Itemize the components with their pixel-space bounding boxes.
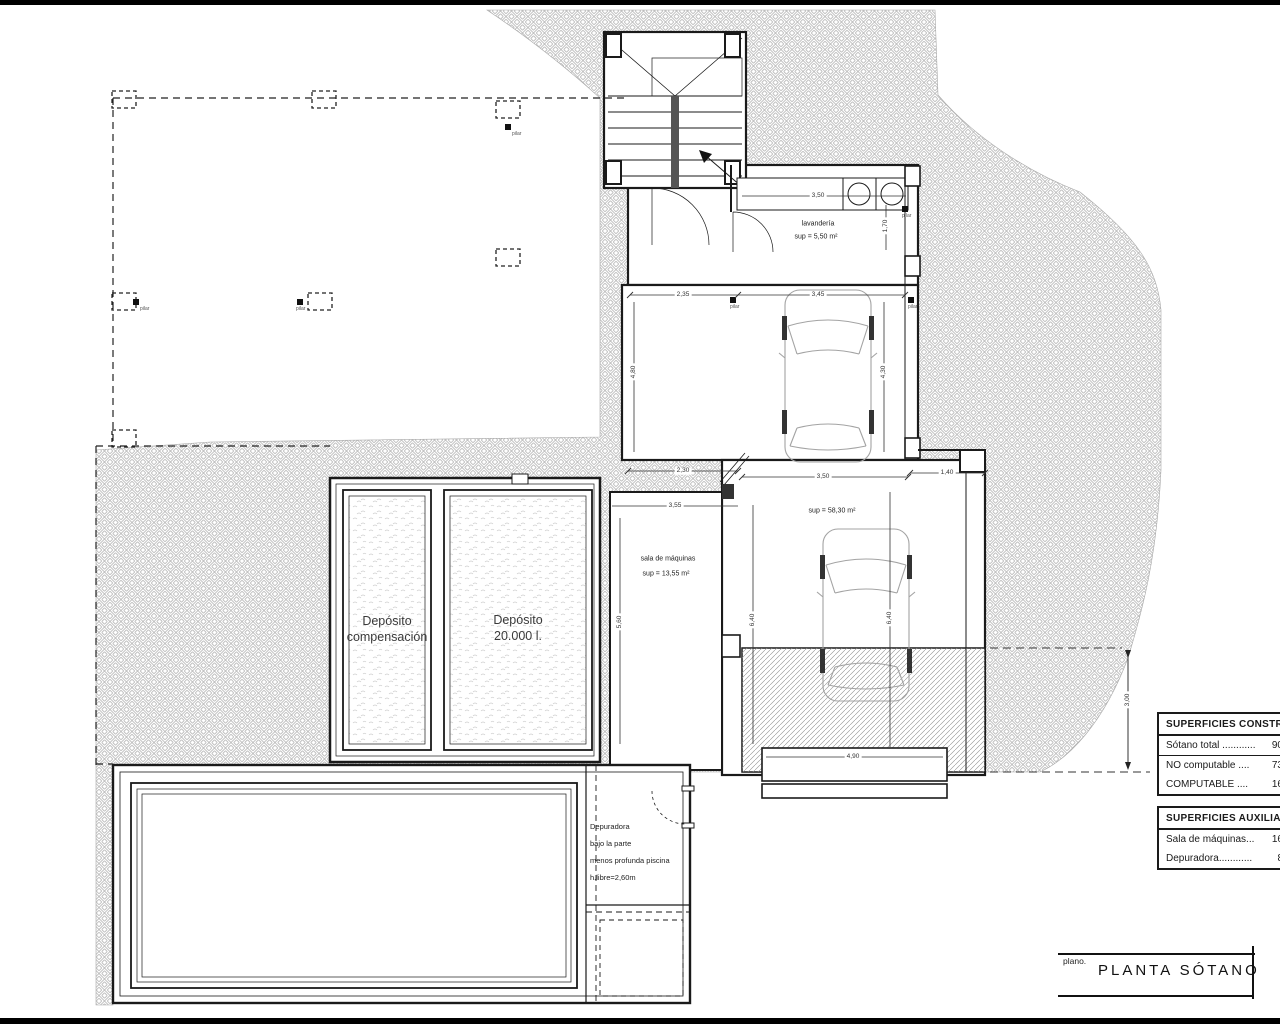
note-line: Depuradora (590, 818, 670, 835)
upper-floor-pillar-squares (112, 91, 520, 447)
table-header: SUPERFICIES CONSTRU (1159, 714, 1280, 736)
floor-plan-page: lavandería sup = 5,50 m² sup = 58,30 m² … (0, 0, 1280, 1024)
table-superficies-auxiliares: SUPERFICIES AUXILIAR Sala de máquinas...… (1157, 806, 1280, 870)
drawing-title: PLANTA SÓTANO (1098, 962, 1260, 979)
table-row: Depuradora............ 8 (1159, 849, 1280, 868)
dim-label: 4,80 (631, 364, 638, 381)
tank-label-line: 20.000 l. (494, 629, 542, 643)
pool-basin (131, 783, 577, 988)
row-label: Depuradora............ (1166, 853, 1252, 864)
table-header: SUPERFICIES AUXILIAR (1159, 808, 1280, 830)
room-area-laundry: sup = 5,50 m² (795, 234, 838, 241)
pillar-tag: pilar (296, 307, 305, 312)
room-label-laundry: lavandería (802, 221, 835, 228)
row-value: 73 (1272, 760, 1280, 771)
screen-edge-top (0, 0, 1280, 5)
dim-label: 2,35 (675, 292, 692, 299)
tank-label-line: Depósito (362, 614, 411, 628)
dim-label: 3,55 (667, 503, 684, 510)
row-value: 16 (1272, 779, 1280, 790)
title-block-line (1058, 953, 1255, 955)
table-row: COMPUTABLE .... 16 (1159, 775, 1280, 794)
staircase (604, 32, 746, 188)
room-label-machine-room: sala de máquinas (641, 556, 696, 563)
pillar-tag: pilar (902, 214, 911, 219)
dim-label: 5,60 (617, 614, 624, 631)
table-row: NO computable .... 73 (1159, 756, 1280, 775)
row-value: 16 (1272, 834, 1280, 845)
dim-label: 3,45 (810, 292, 827, 299)
tank-label-line: compensación (347, 630, 428, 644)
table-row: Sótano total ............ 90 (1159, 736, 1280, 756)
tank-label-20000l: Depósito 20.000 l. (493, 612, 542, 645)
tank-label-line: Depósito (493, 613, 542, 627)
note-line: bajo la parte (590, 835, 670, 852)
row-label: COMPUTABLE .... (1166, 779, 1248, 790)
pillar-tag: pilar (140, 307, 149, 312)
dim-label: 3,00 (1125, 692, 1132, 709)
table-superficies-construidas: SUPERFICIES CONSTRU Sótano total .......… (1157, 712, 1280, 796)
row-value: 90 (1272, 740, 1280, 751)
table-row: Sala de máquinas... 16 (1159, 830, 1280, 849)
pillar-tag: pilar (512, 132, 521, 137)
dim-label: 3,50 (810, 193, 827, 200)
dim-label: 1,70 (883, 218, 890, 235)
pillar-tag: pilar (908, 305, 917, 310)
machine-room (610, 492, 722, 770)
dim-label: 6,40 (750, 612, 757, 629)
dim-label: 3,50 (815, 474, 832, 481)
depuradora-note: Depuradora bajo la parte menos profunda … (590, 818, 670, 886)
pillar-tag: pilar (730, 305, 739, 310)
room-area-machine-room: sup = 13,55 m² (643, 571, 690, 578)
dim-label: 4,90 (845, 754, 862, 761)
dim-label: 2,30 (675, 468, 692, 475)
tank-label-compensation: Depósito compensación (347, 613, 428, 646)
title-block-field-label: plano. (1063, 956, 1086, 966)
note-line: h.libre=2,60m (590, 869, 670, 886)
title-block-line (1058, 995, 1254, 997)
dim-label: 1,40 (939, 470, 956, 477)
row-label: Sótano total ............ (1166, 740, 1256, 751)
room-area-garage: sup = 58,30 m² (809, 508, 856, 515)
screen-edge-bottom (0, 1018, 1280, 1024)
note-line: menos profunda piscina (590, 852, 670, 869)
row-label: NO computable .... (1166, 760, 1249, 771)
dim-label: 4,30 (881, 364, 888, 381)
row-label: Sala de máquinas... (1166, 834, 1254, 845)
dim-label: 6,40 (887, 610, 894, 627)
